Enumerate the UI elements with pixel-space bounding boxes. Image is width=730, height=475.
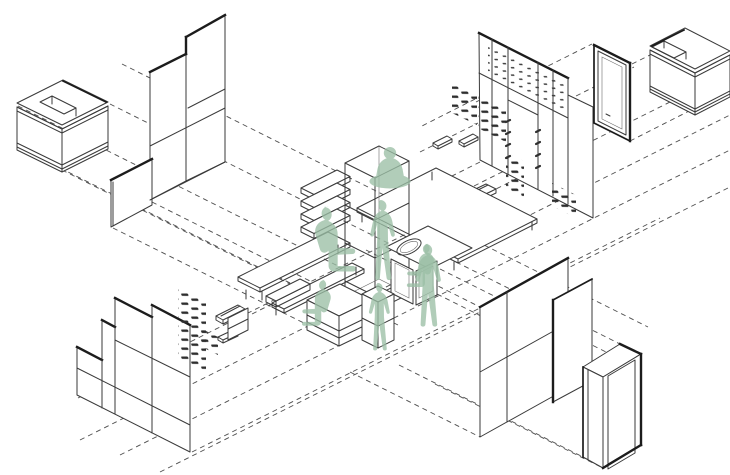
diagram-canvas (0, 0, 730, 475)
stepped-wall-bottom-left (77, 298, 190, 452)
peg-arrays-bottom-left (178, 286, 218, 372)
counter-top-right (650, 28, 730, 115)
panel-wall-top-left (111, 15, 225, 227)
person-cross-legged-on-table (369, 147, 410, 189)
wall-panels-bottom-right (480, 258, 592, 437)
counter-top-left (17, 80, 108, 172)
door-frame (594, 45, 630, 141)
portal-frame (583, 344, 641, 469)
exploded-axonometric-diagram (0, 0, 730, 475)
